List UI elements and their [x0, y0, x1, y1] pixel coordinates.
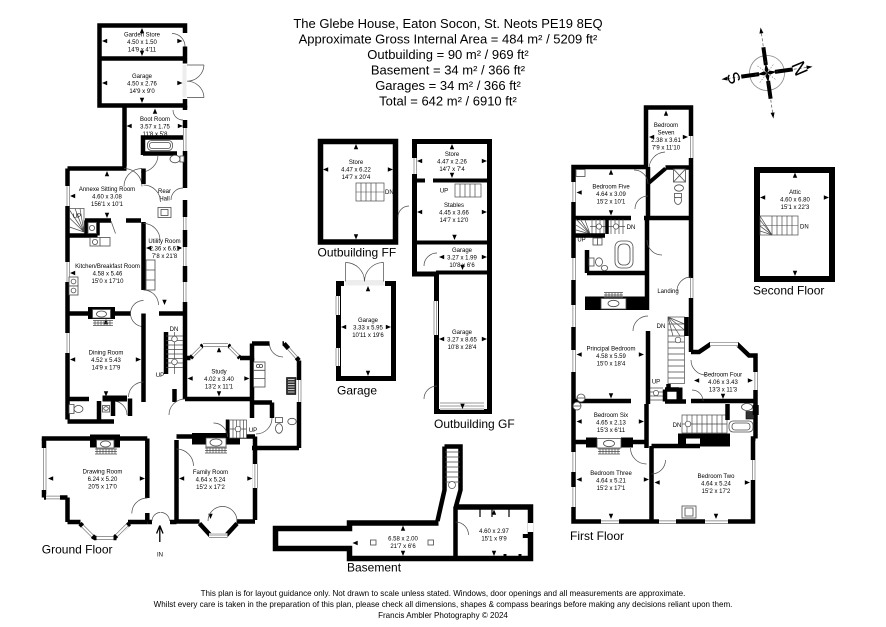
svg-text:Dining Room: Dining Room: [89, 351, 124, 357]
svg-text:15'2 x 17'2: 15'2 x 17'2: [196, 485, 225, 491]
svg-text:3.57 x 1.75: 3.57 x 1.75: [140, 125, 170, 131]
svg-text:Garage: Garage: [132, 74, 153, 80]
svg-text:Attic: Attic: [789, 190, 801, 196]
svg-text:Second Floor: Second Floor: [753, 284, 824, 298]
svg-text:14'9 x 9'0: 14'9 x 9'0: [129, 89, 155, 95]
svg-text:14'9 x 17'9: 14'9 x 17'9: [92, 366, 121, 372]
svg-text:Stables: Stables: [444, 203, 464, 209]
svg-text:Garage: Garage: [452, 330, 473, 336]
svg-text:Garage: Garage: [337, 384, 377, 398]
svg-text:UP: UP: [652, 380, 660, 386]
svg-text:UP: UP: [249, 428, 257, 434]
svg-text:Bedroom Three: Bedroom Three: [590, 471, 632, 477]
svg-text:15'0 x 17'10: 15'0 x 17'10: [92, 279, 125, 285]
svg-text:Francis Ambler Photography © 2: Francis Ambler Photography © 2024: [378, 611, 508, 620]
svg-text:4.06 x 3.43: 4.06 x 3.43: [708, 380, 738, 386]
svg-text:14'7 x 20'4: 14'7 x 20'4: [342, 175, 371, 181]
svg-text:15'1 x 9'9: 15'1 x 9'9: [481, 537, 507, 543]
svg-text:Utility Room: Utility Room: [148, 239, 180, 245]
svg-text:2.36 x 6.61: 2.36 x 6.61: [150, 247, 180, 253]
svg-text:4.50 x 1.50: 4.50 x 1.50: [127, 40, 157, 46]
svg-text:DN: DN: [627, 225, 636, 231]
svg-text:14'7 x 7'4: 14'7 x 7'4: [439, 167, 465, 173]
svg-text:UP: UP: [156, 373, 164, 379]
svg-text:6.24 x 5.20: 6.24 x 5.20: [88, 477, 118, 483]
svg-text:4.50 x 2.76: 4.50 x 2.76: [127, 82, 157, 88]
svg-text:3.33 x 5.95: 3.33 x 5.95: [353, 326, 383, 332]
svg-text:Landing: Landing: [657, 289, 678, 295]
svg-text:Bedroom Five: Bedroom Five: [592, 185, 630, 191]
svg-text:Rear: Rear: [158, 189, 171, 195]
svg-text:Outbuilding GF: Outbuilding GF: [434, 417, 515, 431]
svg-text:4.64 x 5.24: 4.64 x 5.24: [196, 478, 226, 484]
svg-text:4.47 x 6.22: 4.47 x 6.22: [341, 168, 371, 174]
svg-text:4.02 x 3.40: 4.02 x 3.40: [204, 377, 234, 383]
svg-text:Drawing Room: Drawing Room: [83, 470, 123, 476]
svg-text:15'1 x 22'3: 15'1 x 22'3: [781, 205, 810, 211]
svg-text:Family Room: Family Room: [193, 470, 228, 476]
svg-text:This plan is for layout guidan: This plan is for layout guidance only. N…: [201, 589, 686, 598]
svg-text:Outbuilding = 90 m² / 969 ft²: Outbuilding = 90 m² / 969 ft²: [367, 47, 529, 62]
svg-text:DN: DN: [800, 225, 809, 231]
svg-text:Garage: Garage: [358, 318, 379, 324]
svg-text:Boot Room: Boot Room: [140, 117, 170, 123]
svg-text:6.58 x 2.00: 6.58 x 2.00: [388, 537, 418, 543]
svg-text:10'8 x 28'4: 10'8 x 28'4: [448, 345, 477, 351]
svg-text:4.60 x 3.08: 4.60 x 3.08: [92, 195, 122, 201]
svg-text:4.60 x 2.97: 4.60 x 2.97: [479, 529, 509, 535]
svg-text:2.38 x 3.61: 2.38 x 3.61: [651, 138, 681, 144]
svg-text:15'2 x 10'1: 15'2 x 10'1: [597, 200, 626, 206]
svg-text:Bedroom: Bedroom: [654, 123, 678, 129]
svg-text:UP: UP: [577, 238, 585, 244]
svg-text:UP: UP: [440, 189, 448, 195]
svg-text:Basement: Basement: [347, 561, 402, 575]
svg-text:4.58 x 5.59: 4.58 x 5.59: [596, 354, 626, 360]
svg-text:Study: Study: [211, 370, 226, 376]
svg-text:156'1 x 10'1: 156'1 x 10'1: [91, 202, 124, 208]
svg-text:Seven: Seven: [657, 131, 674, 137]
svg-text:Outbuilding FF: Outbuilding FF: [318, 245, 397, 259]
svg-text:Whilst every care is taken in: Whilst every care is taken in the prepar…: [154, 600, 733, 609]
svg-text:Kitchen/Breakfast Room: Kitchen/Breakfast Room: [75, 264, 140, 270]
svg-text:4.45 x 3.66: 4.45 x 3.66: [439, 211, 469, 217]
svg-text:UP: UP: [73, 214, 81, 220]
svg-text:Ground Floor: Ground Floor: [42, 543, 113, 557]
svg-text:Garages = 34 m² / 366 ft²: Garages = 34 m² / 366 ft²: [375, 78, 521, 93]
svg-text:3.27 x 1.99: 3.27 x 1.99: [447, 256, 477, 262]
svg-text:Garden Store: Garden Store: [124, 33, 161, 39]
svg-text:14'7 x 12'0: 14'7 x 12'0: [440, 218, 469, 224]
svg-text:13'2 x 11'1: 13'2 x 11'1: [205, 385, 234, 391]
svg-text:7'9 x 11'10: 7'9 x 11'10: [652, 146, 681, 152]
svg-text:4.52 x 5.43: 4.52 x 5.43: [91, 358, 121, 364]
svg-text:4.65 x 2.13: 4.65 x 2.13: [596, 421, 626, 427]
svg-text:Store: Store: [349, 160, 364, 166]
svg-text:10'11 x 19'6: 10'11 x 19'6: [352, 333, 384, 339]
svg-text:4.64 x 5.24: 4.64 x 5.24: [701, 482, 731, 488]
svg-text:21'7 x 6'6: 21'7 x 6'6: [390, 544, 416, 550]
svg-text:DN: DN: [673, 423, 682, 429]
svg-text:4.64 x 5.21: 4.64 x 5.21: [596, 479, 626, 485]
svg-text:DN: DN: [657, 324, 666, 330]
svg-text:4.60 x 6.80: 4.60 x 6.80: [780, 198, 810, 204]
svg-text:Bedroom Six: Bedroom Six: [594, 413, 628, 419]
svg-text:Basement = 34 m² / 366 ft²: Basement = 34 m² / 366 ft²: [371, 63, 526, 78]
svg-text:Approximate Gross Internal Are: Approximate Gross Internal Area = 484 m²…: [299, 32, 598, 47]
svg-text:IN: IN: [157, 553, 163, 559]
svg-text:4.58 x 5.46: 4.58 x 5.46: [93, 272, 123, 278]
svg-text:Bedroom Four: Bedroom Four: [704, 373, 742, 379]
svg-text:Annexe Sitting Room: Annexe Sitting Room: [79, 187, 135, 193]
svg-text:Total = 642 m² / 6910 ft²: Total = 642 m² / 6910 ft²: [379, 94, 517, 109]
svg-text:3.27 x 8.65: 3.27 x 8.65: [447, 338, 477, 344]
svg-text:14'9 x 4'11: 14'9 x 4'11: [128, 48, 157, 54]
svg-text:15'0 x 18'4: 15'0 x 18'4: [597, 362, 626, 368]
svg-text:DN: DN: [170, 327, 179, 333]
svg-text:20'5 x 17'0: 20'5 x 17'0: [88, 485, 117, 491]
svg-text:Principal Bedroom: Principal Bedroom: [586, 347, 635, 353]
svg-text:Store: Store: [445, 152, 460, 158]
svg-text:15'3 x 6'11: 15'3 x 6'11: [597, 428, 626, 434]
svg-text:13'3 x 11'3: 13'3 x 11'3: [709, 388, 738, 394]
svg-text:Hall: Hall: [159, 197, 169, 203]
svg-text:15'2 x 17'1: 15'2 x 17'1: [597, 486, 626, 492]
svg-text:First Floor: First Floor: [570, 529, 624, 543]
svg-text:4.47 x 2.26: 4.47 x 2.26: [437, 160, 467, 166]
svg-text:Bedroom Two: Bedroom Two: [698, 474, 736, 480]
svg-text:Garage: Garage: [452, 248, 473, 254]
svg-text:The Glebe House, Eaton Socon,: The Glebe House, Eaton Socon, St. Neots …: [293, 16, 602, 31]
svg-text:DN: DN: [385, 190, 394, 196]
svg-text:4.64 x 3.09: 4.64 x 3.09: [596, 192, 626, 198]
svg-text:7'8 x 21'8: 7'8 x 21'8: [152, 254, 178, 260]
svg-text:15'2 x 17'2: 15'2 x 17'2: [702, 489, 731, 495]
